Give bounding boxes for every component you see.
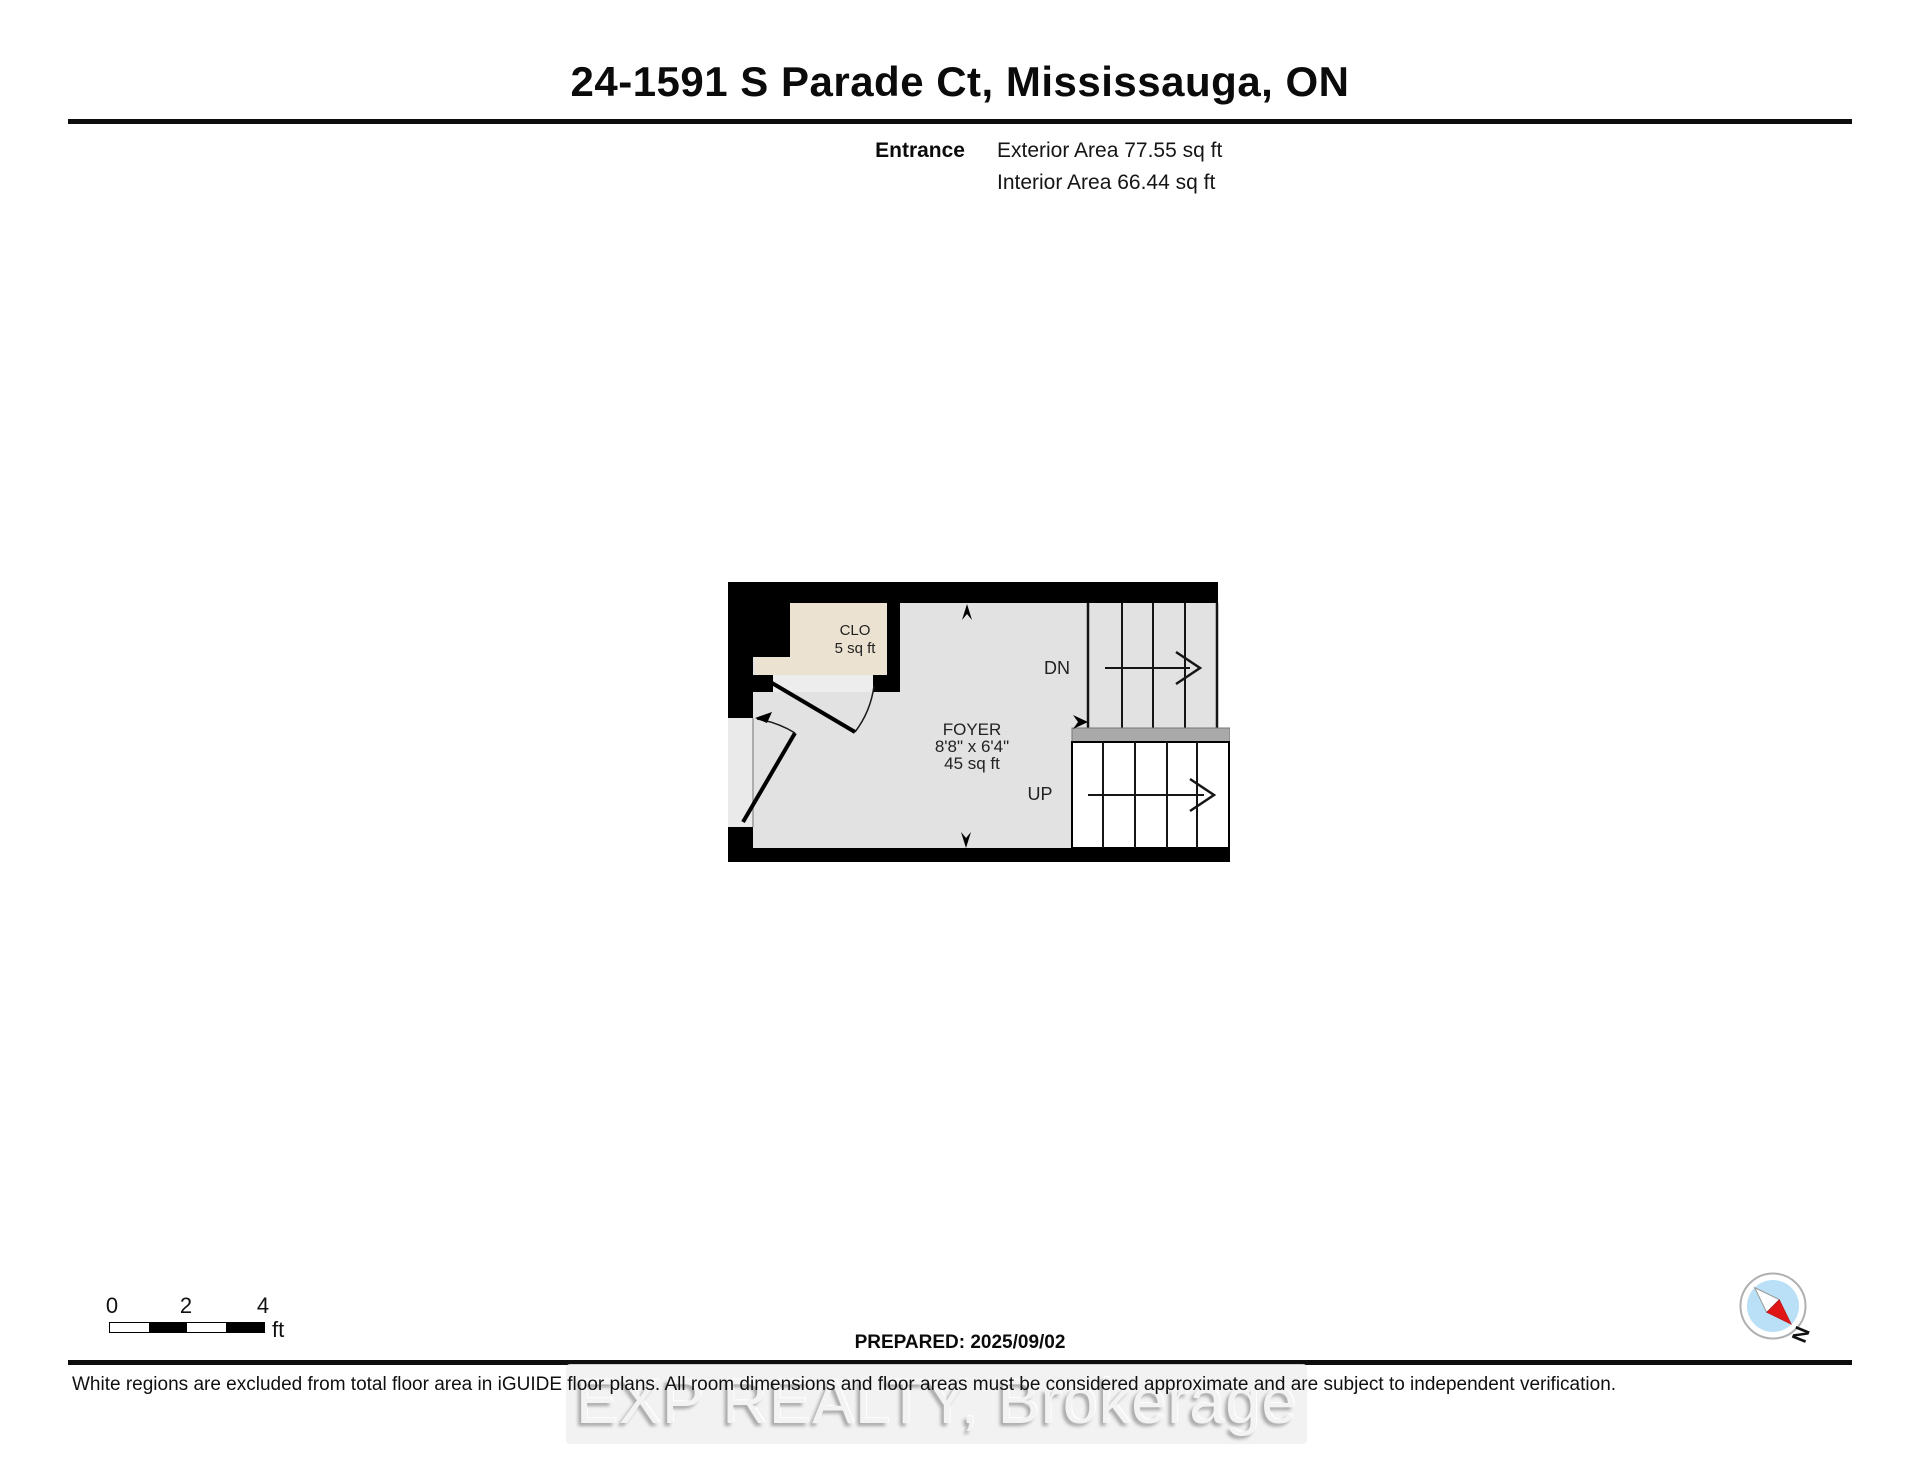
closet-floor (790, 603, 887, 675)
disclaimer-text: White regions are excluded from total fl… (72, 1374, 1616, 1396)
closet-floor-extension (755, 657, 790, 675)
closet-door-opening (773, 675, 873, 692)
interior-area-text: Interior Area 66.44 sq ft (997, 171, 1215, 195)
closet-area-label: 5 sq ft (835, 640, 877, 657)
closet-name-label: CLO (840, 622, 871, 639)
scale-tick-0: 0 (97, 1293, 127, 1319)
scale-bar-segment (110, 1323, 149, 1332)
stairs-up-label: UP (1027, 784, 1052, 804)
foyer-area-label: 45 sq ft (944, 754, 1000, 773)
floor-name-label: Entrance (735, 139, 965, 163)
stairs-up (1072, 742, 1229, 848)
wall-left-upper (728, 582, 753, 718)
page-title: 24-1591 S Parade Ct, Mississauga, ON (0, 58, 1920, 106)
wall-closet-block (753, 603, 790, 657)
wall-bottom (728, 848, 1230, 862)
scale-bar-segment (149, 1323, 188, 1332)
title-divider (68, 119, 1852, 124)
stairs-down-label: DN (1044, 658, 1070, 678)
scale-bar-segment (226, 1323, 265, 1332)
wall-closet-under-right (873, 675, 900, 692)
wall-top (728, 582, 1218, 603)
floorplan-drawing: CLO 5 sq ft FOYER 8'8" x 6'4" 45 sq ft D… (728, 582, 1230, 868)
scale-tick-2: 2 (171, 1293, 201, 1319)
scale-tick-4: 4 (248, 1293, 278, 1319)
wall-left-lower-stub (728, 827, 753, 848)
prepared-date-text: PREPARED: 2025/09/02 (0, 1332, 1920, 1354)
scale-bar-segment (187, 1323, 226, 1332)
exterior-area-text: Exterior Area 77.55 sq ft (997, 139, 1222, 163)
stairs-landing (1072, 728, 1230, 742)
floorplan-page: 24-1591 S Parade Ct, Mississauga, ON Ent… (0, 0, 1920, 1484)
wall-closet-under-left (753, 675, 773, 692)
